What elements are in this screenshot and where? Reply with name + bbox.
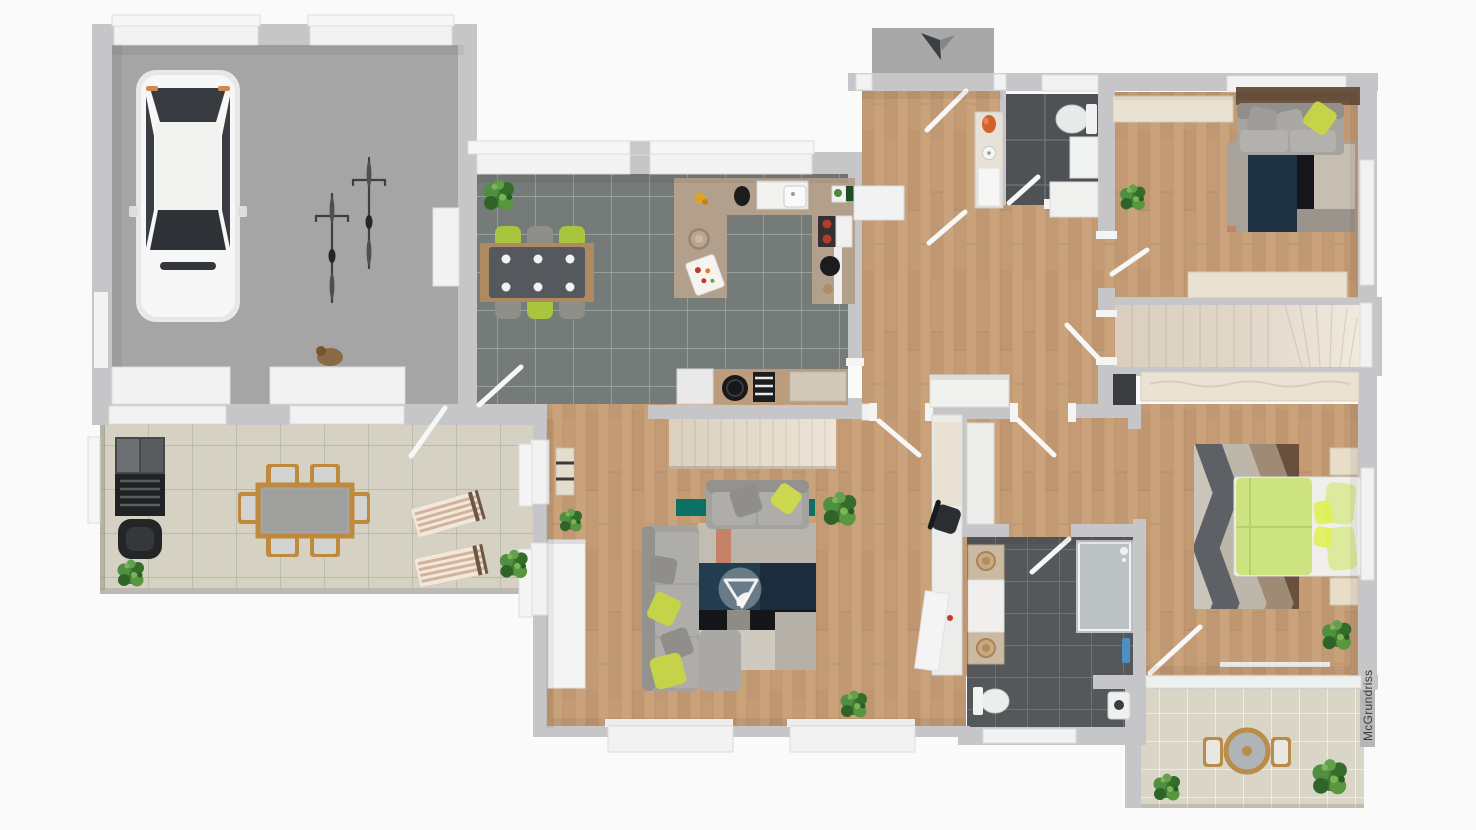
- svg-text:McGrundriss: McGrundriss: [1361, 670, 1375, 741]
